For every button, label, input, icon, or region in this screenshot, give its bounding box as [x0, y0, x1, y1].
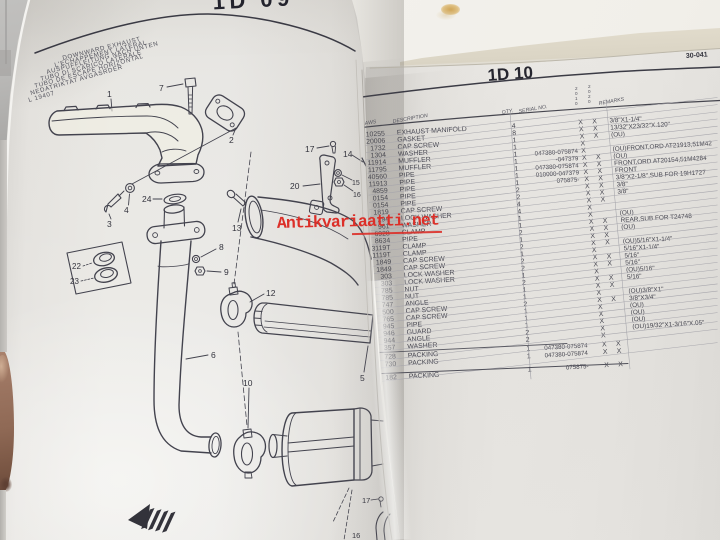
svg-text:2: 2: [229, 135, 234, 145]
svg-text:2: 2: [521, 265, 525, 272]
svg-text:X: X: [603, 225, 608, 232]
svg-text:20: 20: [290, 181, 300, 191]
svg-text:23: 23: [70, 277, 79, 286]
svg-text:X: X: [610, 282, 615, 289]
svg-text:0: 0: [588, 99, 591, 104]
svg-text:4: 4: [124, 205, 129, 215]
svg-text:1: 1: [520, 251, 524, 258]
svg-text:1: 1: [512, 137, 516, 144]
svg-text:REMARKS: REMARKS: [598, 97, 625, 107]
svg-text:30-041: 30-041: [686, 51, 708, 60]
svg-text:8: 8: [512, 130, 516, 137]
svg-text:X: X: [605, 239, 610, 246]
svg-text:X: X: [603, 349, 608, 356]
svg-text:1: 1: [514, 166, 518, 173]
svg-text:X: X: [600, 196, 605, 203]
svg-text:1: 1: [107, 89, 112, 99]
svg-text:X: X: [594, 133, 599, 140]
svg-text:X: X: [607, 260, 612, 267]
svg-text:X: X: [618, 361, 623, 368]
svg-text:075875-: 075875-: [557, 176, 580, 184]
svg-text:1: 1: [521, 273, 525, 280]
svg-text:3: 3: [107, 219, 112, 229]
svg-text:8: 8: [219, 242, 224, 252]
svg-text:PACKING: PACKING: [409, 372, 440, 381]
svg-text:10: 10: [243, 378, 253, 388]
svg-text:1: 1: [513, 144, 517, 151]
svg-text:1: 1: [522, 287, 526, 294]
svg-text:1: 1: [515, 173, 519, 180]
svg-text:X: X: [598, 175, 603, 182]
svg-text:X: X: [616, 340, 621, 347]
svg-text:9: 9: [224, 267, 229, 277]
svg-text:7: 7: [159, 83, 164, 93]
svg-text:24: 24: [142, 194, 152, 204]
svg-text:X: X: [611, 296, 616, 303]
svg-text:2: 2: [522, 280, 526, 287]
svg-text:4: 4: [512, 123, 516, 130]
svg-text:13: 13: [232, 223, 242, 233]
svg-text:047380-075874: 047380-075874: [544, 350, 588, 360]
svg-text:2: 2: [520, 258, 524, 265]
svg-text:0: 0: [575, 101, 578, 106]
svg-text:22: 22: [72, 262, 81, 271]
svg-text:X: X: [604, 362, 609, 369]
svg-text:PACKING: PACKING: [408, 358, 439, 367]
svg-text:6: 6: [211, 350, 216, 360]
svg-text:1: 1: [513, 151, 517, 158]
svg-text:1D 09: 1D 09: [212, 0, 294, 14]
svg-text:12: 12: [266, 288, 276, 298]
svg-text:X: X: [601, 332, 606, 339]
svg-text:1: 1: [514, 159, 518, 166]
svg-text:WASHER: WASHER: [407, 342, 437, 351]
svg-text:17: 17: [305, 144, 315, 154]
svg-text:075875-: 075875-: [566, 363, 589, 371]
